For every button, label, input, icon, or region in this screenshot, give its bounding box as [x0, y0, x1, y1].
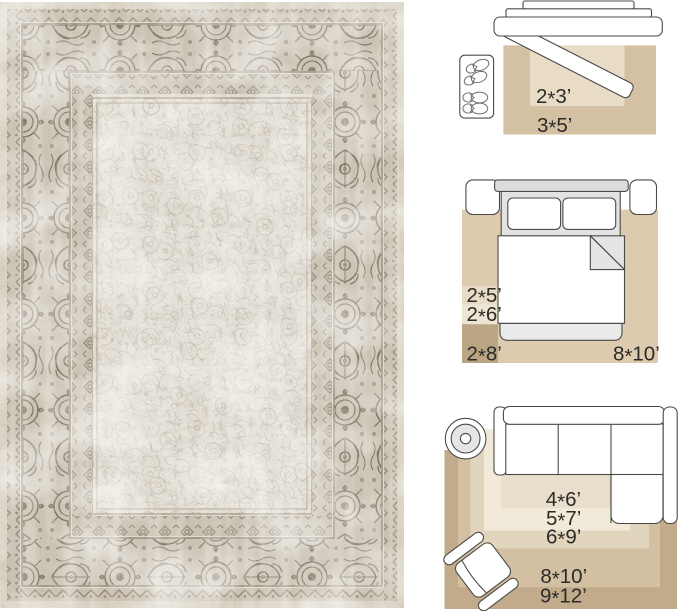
svg-text:2*3’: 2*3’ — [536, 85, 571, 111]
svg-text:2*8’: 2*8’ — [467, 343, 502, 369]
svg-text:3*5’: 3*5’ — [537, 114, 572, 140]
svg-text:8*10’: 8*10’ — [613, 343, 660, 369]
svg-text:6*9’: 6*9’ — [546, 526, 581, 552]
svg-text:9*12’: 9*12’ — [540, 585, 587, 611]
svg-text:2*6’: 2*6’ — [467, 303, 502, 329]
